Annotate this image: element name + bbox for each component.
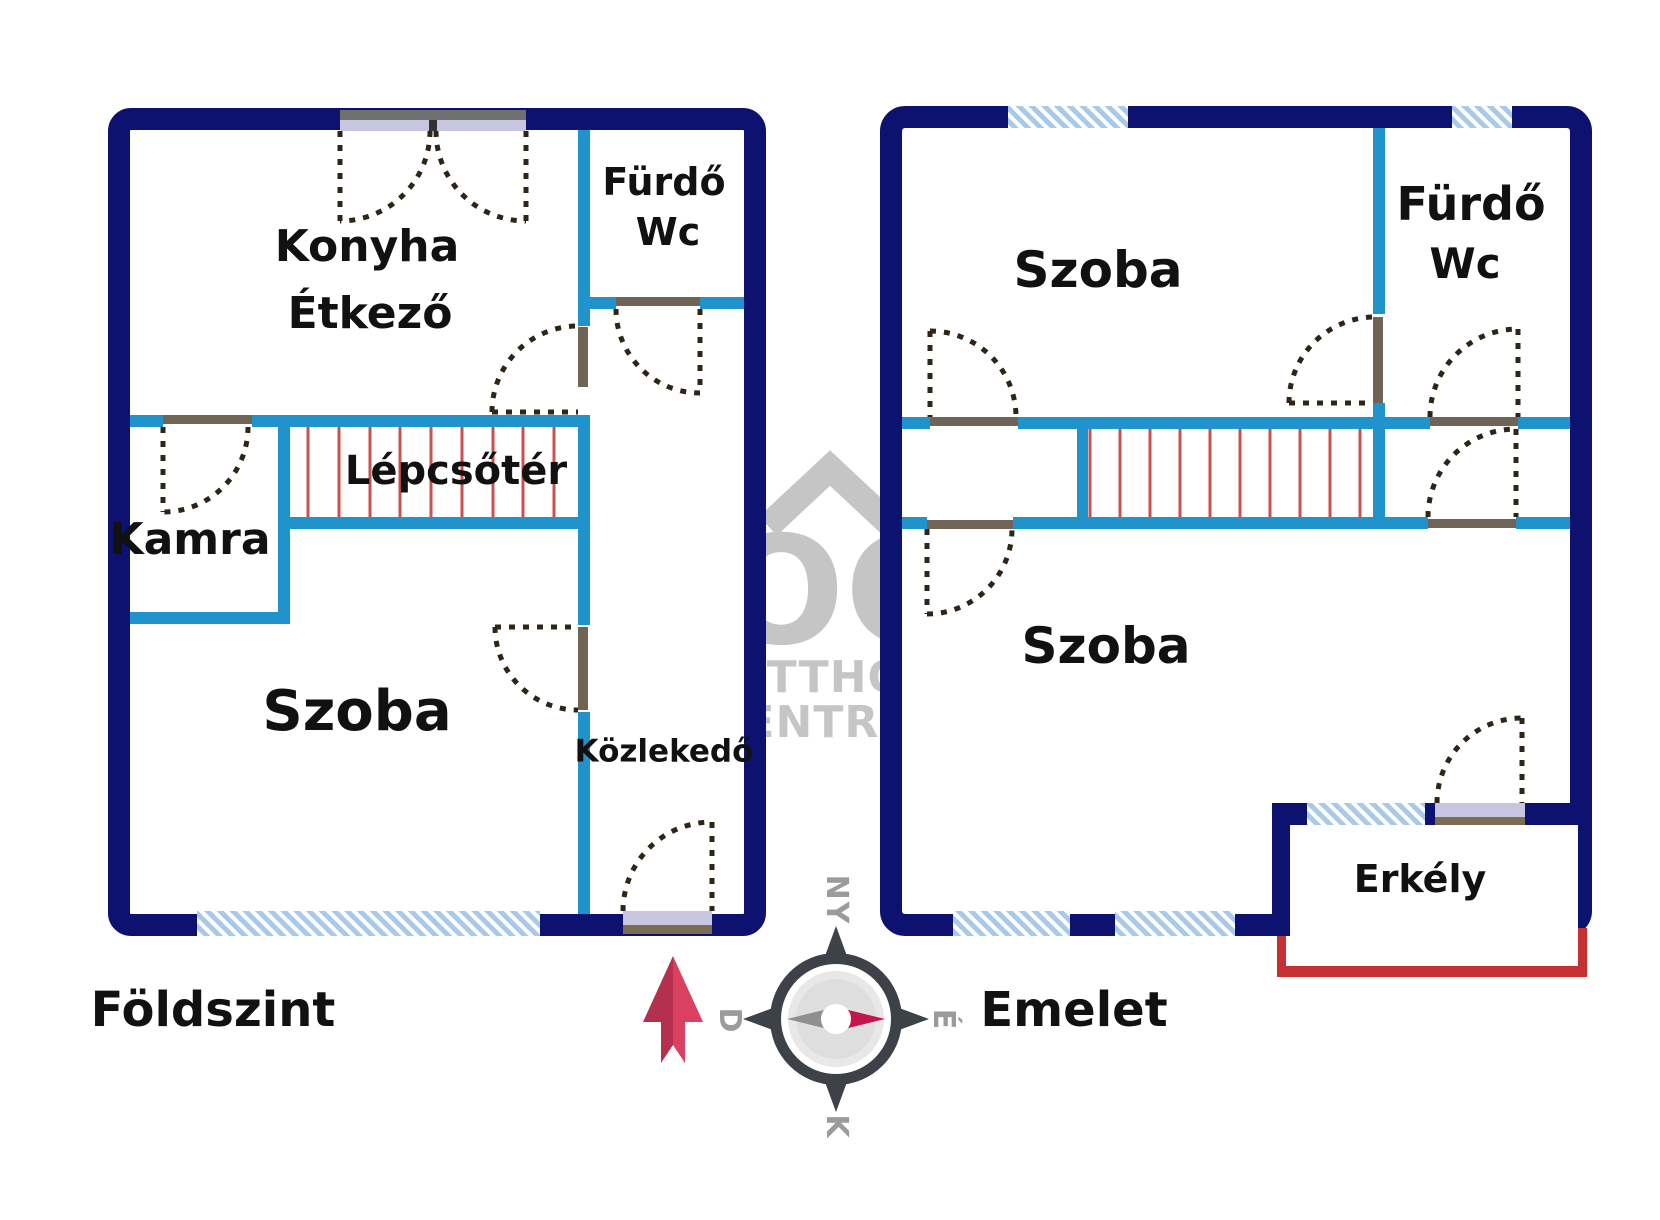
compass-label-top: NY	[821, 875, 851, 926]
floor-label-emelet: Emelet	[980, 986, 1167, 1034]
room-label-erkely: Erkély	[1354, 860, 1487, 898]
room-label-kozlekedo: Közlekedő	[575, 737, 754, 768]
upper-window-bottom-2	[1115, 911, 1235, 936]
room-label-furdo-ground: Fürdő	[602, 163, 725, 201]
room-label-wc-ground: Wc	[636, 213, 700, 251]
floor-label-foldszint: Földszint	[91, 986, 336, 1034]
room-label-etkezo: Étkező	[288, 292, 453, 336]
room-label-lepcsoter: Lépcsőtér	[345, 451, 567, 491]
upper-window-top-left	[1008, 106, 1128, 128]
compass-label-bottom: K	[821, 1114, 851, 1139]
room-window-ground	[197, 911, 540, 936]
balcony-window	[1307, 803, 1425, 825]
balcony-wall-bottom	[1277, 966, 1587, 977]
room-label-wc-upper: Wc	[1429, 243, 1500, 285]
upper-window-top-right	[1452, 106, 1512, 128]
compass-icon	[743, 926, 929, 1112]
room-label-szoba-ground: Szoba	[262, 684, 451, 740]
balcony-wall-right	[1578, 928, 1587, 977]
room-label-kamra: Kamra	[109, 518, 270, 562]
floor-plan-canvas: OC OTTHON CENTRUM	[0, 0, 1660, 1220]
room-label-furdo-upper: Fürdő	[1396, 181, 1545, 227]
room-label-szoba-upper-2: Szoba	[1022, 621, 1191, 671]
floorplan-emelet-drawing	[891, 106, 1592, 977]
room-label-konyha: Konyha	[275, 225, 460, 269]
north-arrow-icon	[643, 956, 703, 1063]
room-label-szoba-upper-1: Szoba	[1014, 245, 1183, 295]
compass-label-left: D	[714, 1008, 744, 1035]
compass-label-right: É	[928, 1009, 958, 1032]
upper-window-bottom-1	[953, 911, 1070, 936]
